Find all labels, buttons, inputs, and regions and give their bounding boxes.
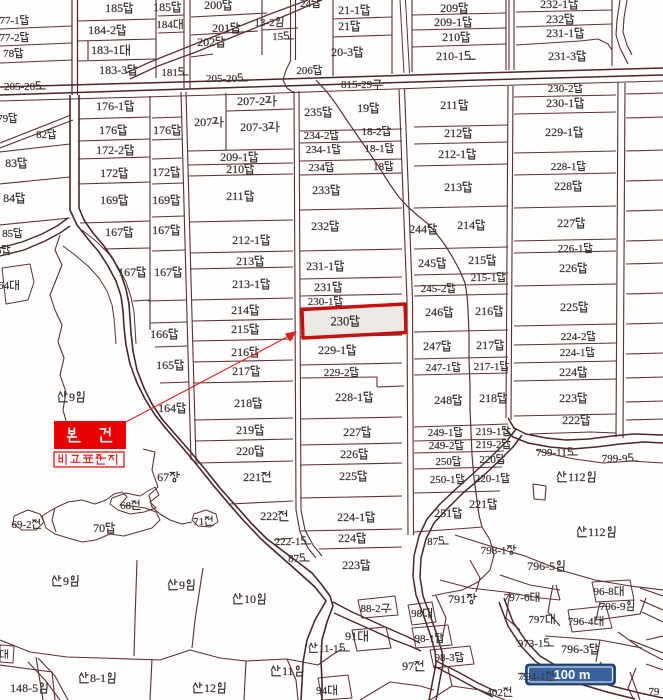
svg-text:214: 214 bbox=[231, 303, 249, 317]
svg-text:21-1: 21-1 bbox=[338, 3, 360, 17]
svg-text:223: 223 bbox=[559, 391, 577, 405]
svg-text:69-2: 69-2 bbox=[12, 519, 32, 531]
svg-text:229-1: 229-1 bbox=[318, 343, 346, 357]
svg-text:205-20: 205-20 bbox=[4, 81, 36, 93]
svg-text:794-1: 794-1 bbox=[520, 671, 546, 683]
svg-text:77-2: 77-2 bbox=[0, 32, 20, 44]
svg-text:231-3: 231-3 bbox=[548, 49, 576, 63]
svg-text:148-5: 148-5 bbox=[10, 681, 38, 695]
svg-text:229-2: 229-2 bbox=[324, 367, 350, 379]
svg-text:207: 207 bbox=[194, 115, 212, 129]
svg-text:68: 68 bbox=[120, 500, 132, 512]
svg-text:94: 94 bbox=[316, 685, 328, 697]
svg-text:98-3: 98-3 bbox=[435, 652, 456, 664]
svg-text:230-1: 230-1 bbox=[546, 96, 574, 110]
svg-text:214: 214 bbox=[457, 218, 475, 232]
svg-text:166: 166 bbox=[150, 327, 168, 341]
svg-text:215: 215 bbox=[468, 253, 486, 267]
svg-text:222-1: 222-1 bbox=[275, 536, 301, 548]
svg-text:224-2: 224-2 bbox=[561, 331, 587, 343]
svg-text:210: 210 bbox=[442, 30, 460, 44]
svg-text:67: 67 bbox=[157, 470, 169, 484]
svg-text:79: 79 bbox=[649, 686, 661, 698]
svg-text:226: 226 bbox=[340, 447, 358, 461]
svg-text:169: 169 bbox=[100, 193, 118, 207]
svg-text:176: 176 bbox=[99, 123, 117, 137]
svg-text:218: 218 bbox=[234, 396, 252, 410]
svg-text:791: 791 bbox=[448, 592, 466, 606]
svg-text:209-1: 209-1 bbox=[434, 15, 462, 29]
svg-text:224: 224 bbox=[559, 365, 577, 379]
svg-text:209: 209 bbox=[440, 1, 458, 15]
svg-text:212: 212 bbox=[444, 126, 462, 140]
svg-text:234-2: 234-2 bbox=[304, 130, 330, 142]
svg-text:112: 112 bbox=[568, 470, 586, 484]
svg-text:230: 230 bbox=[331, 314, 350, 328]
svg-text:230-1: 230-1 bbox=[308, 296, 334, 308]
svg-text:212-1: 212-1 bbox=[438, 147, 466, 161]
svg-text:235: 235 bbox=[304, 105, 322, 119]
svg-text:231-1: 231-1 bbox=[306, 259, 334, 273]
svg-text:169: 169 bbox=[152, 193, 170, 207]
svg-text:227: 227 bbox=[343, 425, 361, 439]
svg-text:167: 167 bbox=[105, 225, 123, 239]
svg-text:200: 200 bbox=[204, 0, 222, 12]
svg-text:21: 21 bbox=[338, 19, 350, 33]
svg-text:973-1: 973-1 bbox=[518, 638, 544, 650]
svg-text:8-1: 8-1 bbox=[90, 671, 106, 685]
svg-text:230-2: 230-2 bbox=[548, 83, 574, 95]
svg-text:251: 251 bbox=[434, 506, 452, 520]
svg-text:100 m: 100 m bbox=[554, 667, 591, 682]
svg-text:796-5: 796-5 bbox=[527, 559, 555, 573]
svg-text:15: 15 bbox=[272, 31, 284, 43]
svg-text:246: 246 bbox=[425, 305, 443, 319]
svg-text:91: 91 bbox=[345, 629, 357, 643]
svg-text:249-1: 249-1 bbox=[428, 427, 454, 439]
svg-text:18: 18 bbox=[373, 161, 385, 173]
svg-text:217: 217 bbox=[476, 338, 494, 352]
svg-text:815-29: 815-29 bbox=[341, 79, 373, 91]
svg-text:245: 245 bbox=[418, 256, 436, 270]
svg-text:215-1: 215-1 bbox=[471, 272, 497, 284]
svg-text:245-2: 245-2 bbox=[421, 283, 447, 295]
svg-text:232: 232 bbox=[311, 219, 329, 233]
svg-text:184: 184 bbox=[156, 19, 173, 31]
svg-text:216: 216 bbox=[475, 304, 493, 318]
svg-text:220: 220 bbox=[479, 454, 496, 466]
svg-text:20-3: 20-3 bbox=[331, 45, 353, 59]
svg-text:234: 234 bbox=[308, 162, 325, 174]
svg-text:24: 24 bbox=[300, 0, 312, 10]
svg-text:96-8: 96-8 bbox=[594, 586, 615, 598]
svg-text:234-1: 234-1 bbox=[306, 144, 332, 156]
svg-text:202: 202 bbox=[197, 35, 215, 49]
svg-text:176-1: 176-1 bbox=[96, 99, 124, 113]
svg-text:213: 213 bbox=[236, 254, 254, 268]
svg-text:10: 10 bbox=[244, 592, 256, 606]
svg-text:9: 9 bbox=[63, 574, 69, 588]
svg-text:207-3: 207-3 bbox=[240, 120, 268, 134]
svg-text:9: 9 bbox=[69, 390, 75, 404]
svg-text:402: 402 bbox=[486, 687, 503, 699]
svg-text:216: 216 bbox=[231, 345, 249, 359]
svg-text:172: 172 bbox=[100, 166, 118, 180]
svg-text:217-1: 217-1 bbox=[474, 361, 500, 373]
svg-text:172: 172 bbox=[152, 165, 170, 179]
svg-text:11: 11 bbox=[282, 664, 294, 678]
svg-text:112: 112 bbox=[588, 525, 606, 539]
svg-text:211: 211 bbox=[440, 98, 458, 112]
svg-text:250-1: 250-1 bbox=[430, 474, 456, 486]
svg-text:78: 78 bbox=[3, 48, 15, 60]
svg-text:248: 248 bbox=[434, 393, 452, 407]
svg-text:87: 87 bbox=[427, 536, 439, 548]
svg-text:229-1: 229-1 bbox=[545, 125, 573, 139]
svg-text:167: 167 bbox=[152, 223, 170, 237]
svg-text:797-6: 797-6 bbox=[504, 592, 530, 604]
svg-text:206: 206 bbox=[296, 65, 313, 77]
svg-text:82: 82 bbox=[36, 129, 47, 141]
svg-text:219: 219 bbox=[236, 423, 254, 437]
svg-text:222: 222 bbox=[260, 509, 278, 523]
svg-text:222: 222 bbox=[562, 413, 580, 427]
svg-text:232-1: 232-1 bbox=[540, 0, 568, 11]
svg-text:796-4: 796-4 bbox=[568, 616, 594, 628]
svg-text:9: 9 bbox=[179, 578, 185, 592]
svg-text:181: 181 bbox=[161, 67, 178, 79]
svg-text:19: 19 bbox=[357, 101, 369, 115]
svg-text:84: 84 bbox=[3, 191, 15, 205]
svg-text:244: 244 bbox=[409, 222, 427, 236]
svg-text:183-3: 183-3 bbox=[99, 63, 127, 77]
svg-text:227: 227 bbox=[557, 216, 575, 230]
svg-text:247-1: 247-1 bbox=[426, 362, 452, 374]
svg-text:215: 215 bbox=[231, 322, 249, 336]
svg-text:228-1: 228-1 bbox=[335, 390, 363, 404]
svg-text:185: 185 bbox=[105, 1, 123, 15]
svg-text:97: 97 bbox=[402, 659, 414, 673]
svg-text:233: 233 bbox=[312, 183, 330, 197]
svg-text:98-1: 98-1 bbox=[415, 633, 435, 645]
svg-text:225: 225 bbox=[339, 469, 357, 483]
svg-text:205-20: 205-20 bbox=[206, 73, 238, 85]
svg-text:11-1: 11-1 bbox=[319, 643, 339, 655]
svg-text:796-9: 796-9 bbox=[600, 601, 626, 613]
svg-text:221: 221 bbox=[469, 497, 487, 511]
svg-text:98: 98 bbox=[411, 608, 423, 620]
svg-text:71: 71 bbox=[193, 516, 204, 528]
svg-text:249-2: 249-2 bbox=[429, 440, 455, 452]
svg-text:211: 211 bbox=[226, 189, 244, 203]
svg-text:18-2: 18-2 bbox=[362, 126, 382, 138]
svg-text:64: 64 bbox=[0, 280, 10, 292]
svg-text:799-11: 799-11 bbox=[536, 447, 567, 459]
svg-text:226: 226 bbox=[559, 261, 577, 275]
svg-text:85: 85 bbox=[2, 228, 14, 240]
svg-text:798-1: 798-1 bbox=[481, 545, 507, 557]
svg-text:220-1: 220-1 bbox=[475, 473, 501, 485]
svg-text:77-1: 77-1 bbox=[0, 15, 20, 27]
svg-text:228: 228 bbox=[554, 179, 572, 193]
svg-text:224-1: 224-1 bbox=[560, 347, 586, 359]
svg-text:799-9: 799-9 bbox=[602, 453, 628, 465]
svg-text:172-2: 172-2 bbox=[96, 143, 124, 157]
svg-text:176: 176 bbox=[153, 123, 171, 137]
svg-text:213: 213 bbox=[444, 180, 462, 194]
svg-text:210-1: 210-1 bbox=[436, 49, 464, 63]
svg-text:12: 12 bbox=[204, 681, 216, 695]
svg-text:13-2: 13-2 bbox=[255, 17, 275, 29]
svg-text:167: 167 bbox=[118, 265, 136, 279]
svg-text:79: 79 bbox=[0, 113, 9, 125]
svg-text:221: 221 bbox=[243, 470, 261, 484]
svg-text:18-1: 18-1 bbox=[365, 143, 385, 155]
svg-text:232: 232 bbox=[546, 12, 564, 26]
svg-text:87: 87 bbox=[288, 553, 300, 565]
svg-text:70: 70 bbox=[93, 521, 105, 535]
svg-text:225: 225 bbox=[560, 300, 578, 314]
svg-text:165: 165 bbox=[156, 358, 174, 372]
svg-text:217: 217 bbox=[232, 364, 250, 378]
svg-text:183-1: 183-1 bbox=[91, 43, 119, 57]
svg-text:83: 83 bbox=[5, 156, 17, 170]
svg-text:167: 167 bbox=[154, 265, 172, 279]
svg-text:796-3: 796-3 bbox=[561, 642, 589, 656]
svg-text:797: 797 bbox=[528, 614, 545, 626]
svg-text:207-2: 207-2 bbox=[237, 94, 265, 108]
svg-text:88-2: 88-2 bbox=[361, 603, 381, 615]
svg-text:184-2: 184-2 bbox=[88, 23, 116, 37]
svg-text:219-1: 219-1 bbox=[476, 426, 502, 438]
svg-text:228-1: 228-1 bbox=[551, 161, 577, 173]
svg-text:218: 218 bbox=[479, 391, 497, 405]
svg-text:212-1: 212-1 bbox=[232, 233, 260, 247]
svg-text:250: 250 bbox=[435, 456, 452, 468]
svg-text:226-1: 226-1 bbox=[558, 243, 584, 255]
svg-text:247: 247 bbox=[423, 339, 441, 353]
svg-text:213-1: 213-1 bbox=[232, 277, 260, 291]
svg-text:224: 224 bbox=[338, 531, 356, 545]
svg-text:223: 223 bbox=[342, 558, 360, 572]
svg-text:185: 185 bbox=[153, 0, 171, 14]
svg-text:231: 231 bbox=[314, 280, 332, 294]
svg-text:210: 210 bbox=[226, 162, 244, 176]
svg-text:224-1: 224-1 bbox=[337, 510, 365, 524]
svg-text:220: 220 bbox=[236, 444, 254, 458]
svg-text:219-2: 219-2 bbox=[476, 439, 502, 451]
svg-text:201: 201 bbox=[212, 21, 230, 35]
svg-text:231-1: 231-1 bbox=[546, 26, 574, 40]
